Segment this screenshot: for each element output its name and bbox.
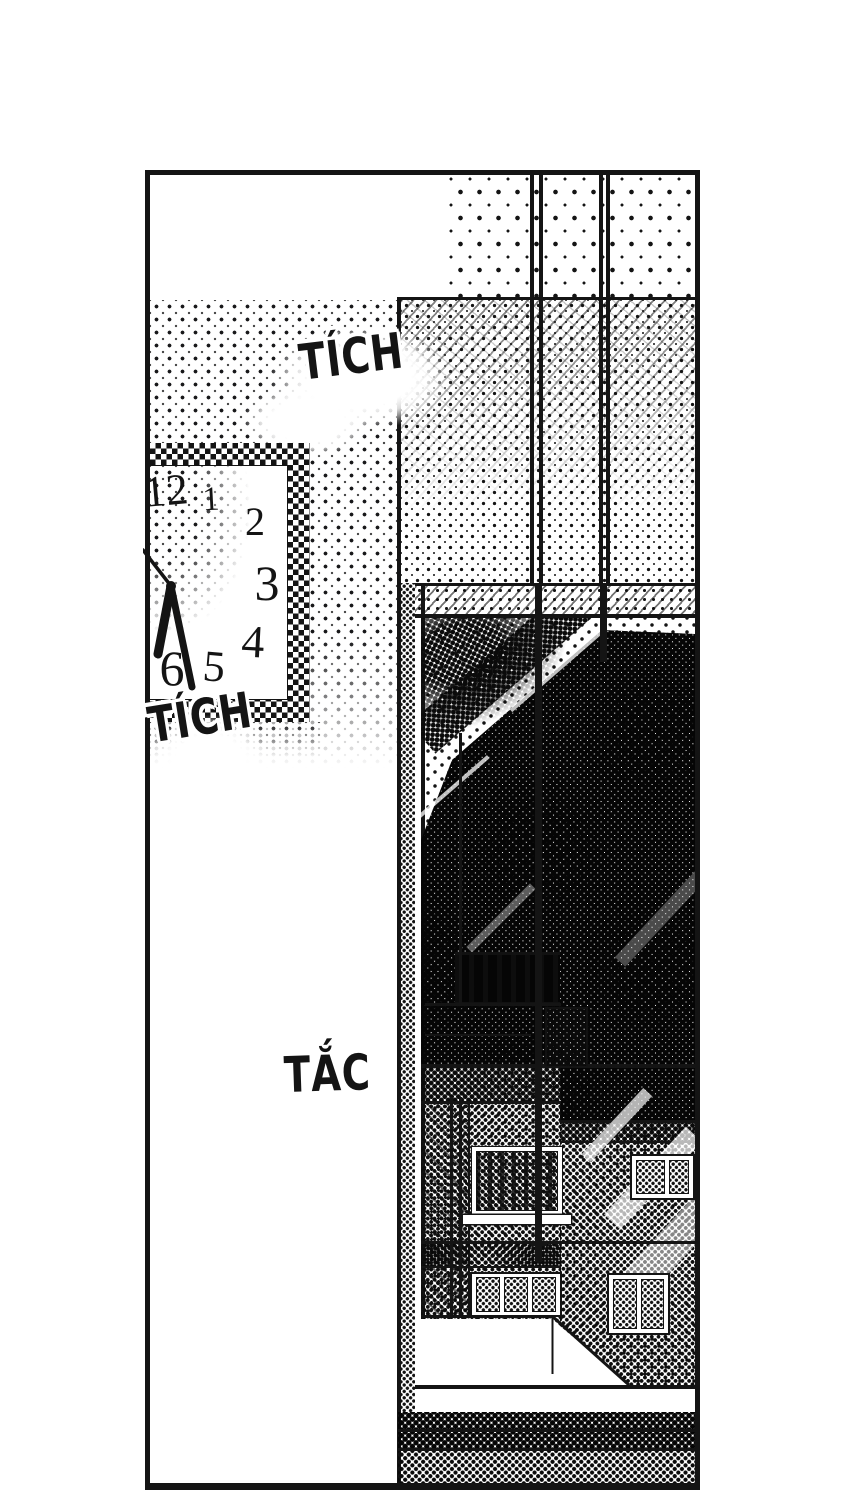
comic-panel: 12 1 2 3 4 5 6 TÍCH TÍCH TẮC — [145, 170, 700, 1490]
sill-band-dark — [398, 1412, 695, 1429]
curtain-rail-left — [539, 175, 543, 583]
window-pane — [636, 1160, 665, 1194]
curtain-rail-right — [606, 175, 610, 583]
window-scene — [421, 618, 695, 1385]
rooftop-diagonal-lines — [421, 1308, 695, 1385]
drain-pipe — [459, 1097, 462, 1317]
balcony-railing-far — [455, 952, 560, 1005]
ledge-hatch-strip — [421, 1103, 470, 1317]
clock-hour-hand — [171, 586, 192, 687]
balcony-base — [463, 1215, 571, 1224]
clock-pivot — [166, 581, 176, 591]
sill-band-mid — [398, 1451, 695, 1483]
window-mullion-left — [535, 583, 542, 1262]
sfx-tock: TẮC — [283, 1044, 372, 1105]
parapet-line — [421, 1266, 561, 1268]
window-pane — [504, 1277, 528, 1312]
window-sill-line — [415, 1385, 695, 1389]
curtain-rail-right — [599, 175, 603, 583]
manga-page: 12 1 2 3 4 5 6 TÍCH TÍCH TẮC — [0, 0, 847, 1497]
window-frame-strip — [401, 583, 415, 1412]
rooftop-box — [545, 1007, 588, 1066]
window-valance — [415, 583, 695, 618]
window-mullion-left-tick — [531, 1243, 547, 1246]
sill-band-dark — [398, 1432, 695, 1448]
window-pane — [476, 1277, 500, 1312]
balcony-railing-near — [472, 1147, 562, 1215]
clock-minute-hand — [158, 586, 171, 654]
clock-numeral-1: 1 — [202, 483, 221, 518]
clock-second-hand — [143, 550, 171, 586]
building-window-pair-upper — [630, 1154, 695, 1200]
clock-numeral-2: 2 — [245, 502, 265, 542]
clock-numeral-12: 12 — [142, 467, 190, 515]
antenna-pole — [459, 733, 462, 1005]
curtain-rail-left — [530, 175, 534, 583]
window-pane — [532, 1277, 556, 1312]
drain-pipe — [450, 1097, 453, 1317]
parapet-line — [421, 1241, 695, 1244]
window-mullion-right — [600, 583, 607, 662]
window-pane — [669, 1160, 689, 1194]
window-top-tone — [447, 175, 695, 300]
ledge-line — [425, 1034, 531, 1036]
